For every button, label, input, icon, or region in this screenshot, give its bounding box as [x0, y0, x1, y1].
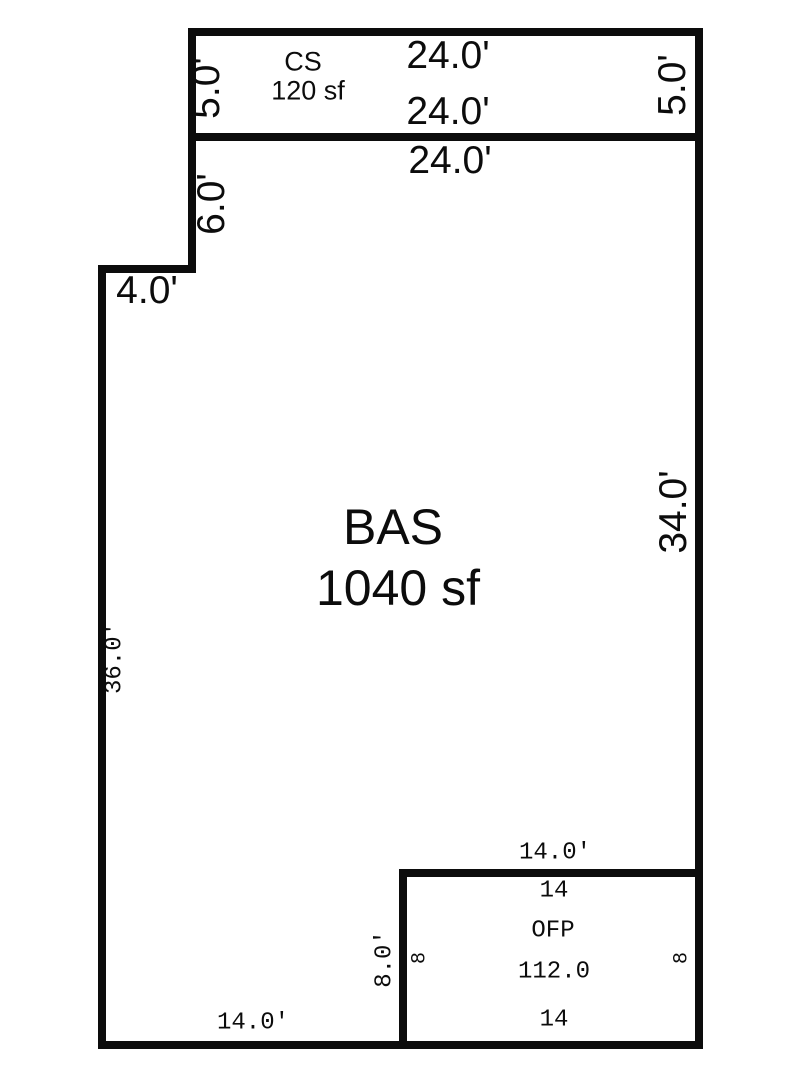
dim-cs-left: 5.0' [185, 57, 229, 119]
wall-ofp-top [399, 869, 703, 877]
dim-ofp-top-outer: 14.0' [519, 840, 591, 867]
wall-right [695, 28, 703, 1049]
dim-bas-bottom-left: 14.0' [217, 1010, 289, 1037]
dim-ofp-left-outer: 8.0' [372, 930, 399, 988]
dim-ofp-left-inner: 8 [409, 952, 432, 964]
dim-bas-top: 24.0' [408, 139, 491, 183]
area-label-bas: BAS [343, 498, 443, 556]
dim-ofp-top-inner: 14 [540, 878, 569, 905]
dim-ofp-right-inner: 8 [671, 952, 694, 964]
dim-ofp-bottom-inner: 14 [540, 1007, 569, 1034]
dim-cs-right: 5.0' [651, 54, 695, 116]
wall-ofp-left [399, 869, 407, 1049]
dim-bas-left-upper: 6.0' [190, 173, 234, 235]
dim-bas-right: 34.0' [652, 470, 696, 553]
dim-bas-jog: 4.0' [116, 269, 178, 313]
dim-bas-left: 36.0' [102, 622, 129, 694]
area-size-cs: 120 sf [271, 76, 345, 107]
floor-plan-sketch: 24.0' 24.0' 5.0' 5.0' CS 120 sf 24.0' 6.… [0, 0, 810, 1080]
area-label-cs: CS [284, 47, 322, 78]
area-label-ofp: OFP [531, 918, 574, 945]
dim-cs-bottom: 24.0' [406, 90, 489, 134]
dim-cs-top: 24.0' [406, 34, 489, 78]
area-size-ofp: 112.0 [518, 959, 590, 986]
area-size-bas: 1040 sf [316, 559, 480, 617]
